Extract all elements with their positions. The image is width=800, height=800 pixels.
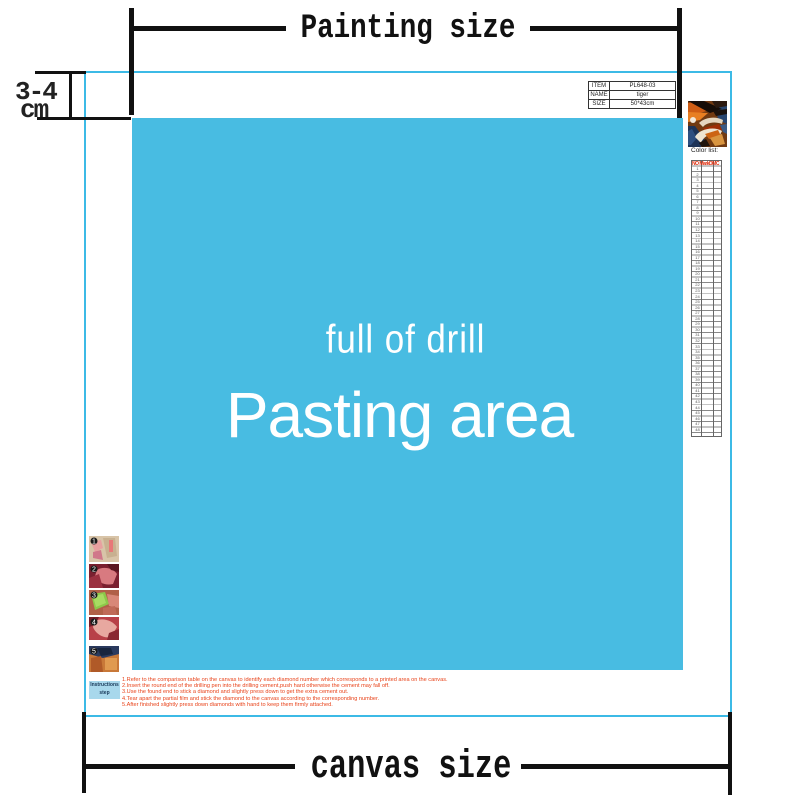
svg-text:5: 5 — [92, 649, 96, 656]
svg-text:2: 2 — [92, 567, 96, 574]
svg-text:3: 3 — [92, 593, 96, 600]
svg-text:4: 4 — [92, 620, 96, 627]
svg-text:1: 1 — [92, 539, 96, 546]
